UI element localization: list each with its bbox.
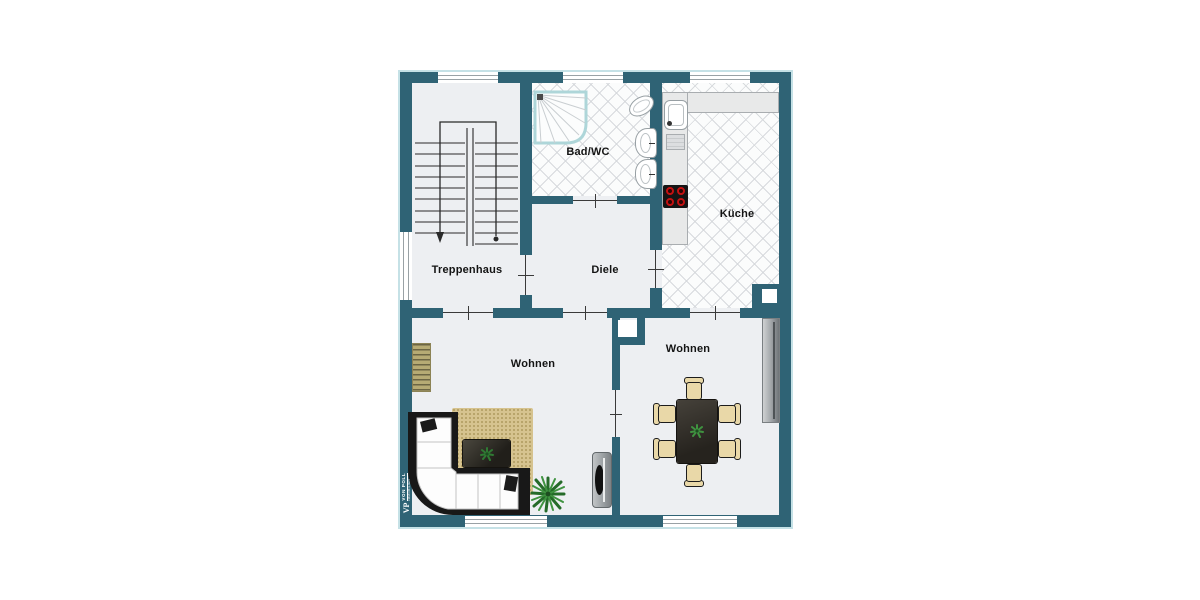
stair-arrow-down-icon [436, 232, 444, 243]
door-kitchen-wohnen [690, 308, 740, 318]
wall-mid-seg1 [412, 308, 443, 318]
wall-outer-right [779, 72, 791, 527]
stove-icon [663, 185, 688, 208]
floorplan-canvas: Treppenhaus Bad/WC Küche Diele Wohnen Wo… [0, 0, 1200, 600]
floorplan: Treppenhaus Bad/WC Küche Diele Wohnen Wo… [400, 72, 791, 527]
window-bottom-wohnen-right [663, 516, 737, 527]
dining-chair-icon [684, 377, 704, 400]
wall-mid-seg2 [493, 308, 563, 318]
window-top-stairs [438, 72, 498, 83]
tv-lowboard-icon [592, 452, 612, 508]
washbasin-icon [635, 159, 657, 189]
vonpoll-brand: VON POLL [402, 473, 407, 501]
wall-mid-seg4 [740, 308, 779, 318]
faucet-icon [667, 121, 672, 126]
wall-stairs-bath [520, 83, 532, 255]
pillow-icon [504, 475, 518, 492]
room-label-treppenhaus: Treppenhaus [432, 264, 503, 276]
door-diele-kitchen [650, 250, 662, 288]
room-label-kueche: Küche [720, 208, 755, 220]
window-top-kitchen [690, 72, 750, 83]
vonpoll-monogram: VP [402, 503, 411, 514]
door-stairs-diele [520, 255, 532, 295]
room-label-bad-wc: Bad/WC [566, 146, 609, 158]
wall-bath-diele-right [617, 196, 650, 204]
dining-chair-icon [684, 463, 704, 487]
sideboard-icon [412, 343, 431, 392]
dining-chair-icon [653, 403, 677, 425]
table-plant-icon [690, 424, 704, 438]
stair-walkline-start [494, 237, 499, 242]
shaft-icon [762, 289, 777, 303]
door-stairs-wohnen [443, 308, 493, 318]
table-plant-icon [480, 447, 494, 461]
window-left-stairs [400, 232, 412, 300]
room-label-diele: Diele [591, 264, 618, 276]
washbasin-icon [635, 128, 657, 158]
kitchen-drawer-icon [666, 134, 685, 150]
wall-wohnen-divider-bottom [612, 437, 620, 515]
dining-chair-icon [653, 438, 677, 460]
stair-divider [467, 128, 473, 246]
stair-walkline [440, 122, 496, 236]
kitchen-sink-icon [664, 100, 688, 130]
shower-icon [533, 90, 588, 145]
door-wohnen-wohnen [612, 390, 620, 437]
wall-mid-seg3 [607, 308, 690, 318]
door-diele-wohnen [563, 308, 607, 318]
shower-drain-icon [537, 94, 543, 100]
staircase-icon [413, 120, 520, 247]
window-top-bath [563, 72, 623, 83]
room-label-wohnen-right: Wohnen [666, 343, 710, 355]
vonpoll-watermark: VP VON POLL IMMOBILIEN [400, 458, 412, 528]
dining-chair-icon [717, 403, 741, 425]
door-bath-diele [573, 196, 617, 206]
dining-chair-icon [717, 438, 741, 460]
floor-plant-icon [530, 475, 566, 513]
window-bottom-wohnen-left [465, 516, 547, 527]
room-label-wohnen-left: Wohnen [511, 358, 555, 370]
radiator-icon [762, 318, 780, 423]
vonpoll-brand-sub: IMMOBILIEN [407, 473, 411, 501]
niche-wall-bottom [618, 337, 645, 345]
wall-bath-diele-left [532, 196, 573, 204]
